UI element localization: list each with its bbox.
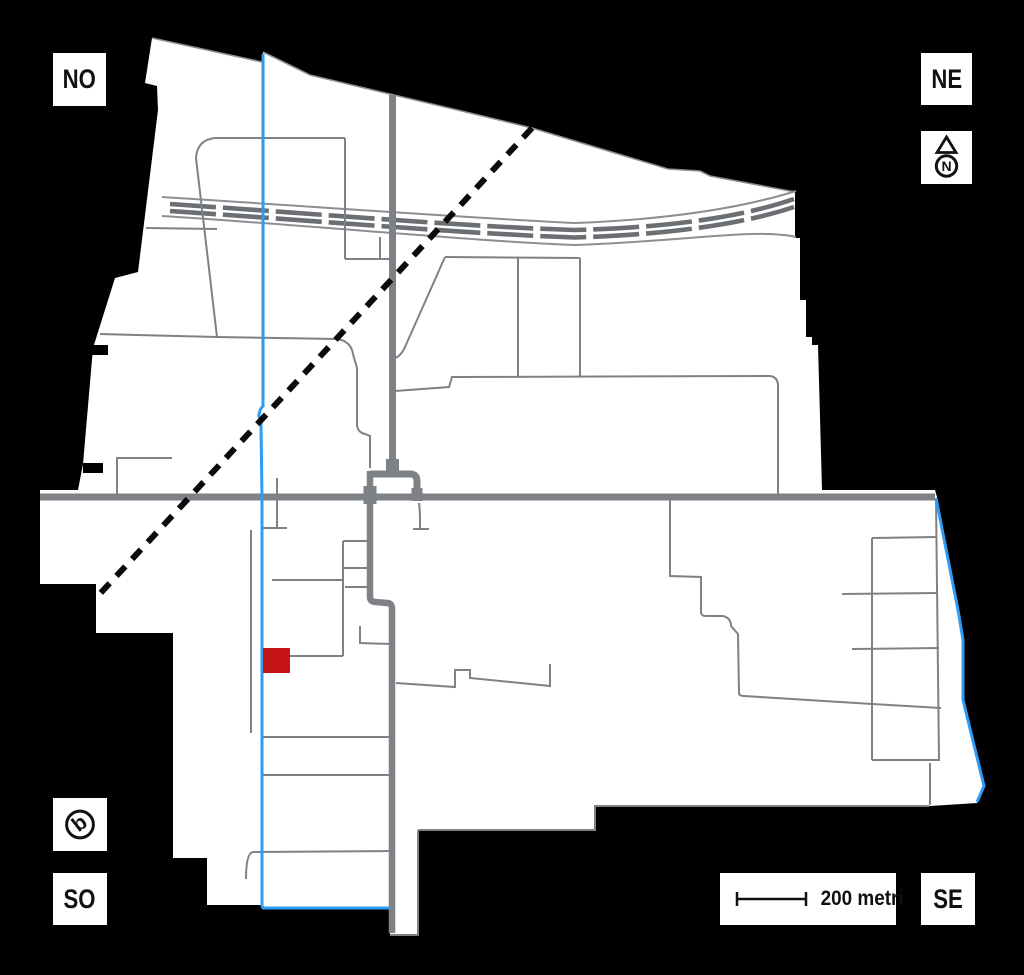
boundary-tab bbox=[83, 463, 103, 473]
district-area bbox=[40, 38, 984, 936]
district-map bbox=[0, 0, 1024, 975]
quadrant-label-ne-box: NE bbox=[921, 53, 972, 105]
highlight-marker-red-square bbox=[263, 648, 290, 673]
north-arrow-icon: N bbox=[921, 131, 972, 184]
quadrant-label-se-box: SE bbox=[921, 873, 975, 925]
street bbox=[852, 648, 939, 649]
logo-box: b bbox=[53, 798, 107, 851]
quadrant-map-screenshot: NO NE N b SO SE bbox=[0, 0, 1024, 975]
street bbox=[842, 593, 938, 594]
street bbox=[146, 228, 217, 229]
quadrant-label-se: SE bbox=[933, 886, 963, 913]
street bbox=[445, 257, 580, 258]
quadrant-label-sw-box: SO bbox=[53, 873, 107, 925]
quadrant-label-nw-box: NO bbox=[53, 53, 106, 106]
boundary-tab bbox=[92, 345, 108, 355]
compass-north-letter: N bbox=[921, 157, 972, 175]
scale-bar-label: 200 metri bbox=[821, 887, 904, 911]
quadrant-label-ne: NE bbox=[931, 66, 962, 93]
compass-box: N bbox=[921, 131, 972, 184]
quadrant-label-nw: NO bbox=[63, 66, 96, 93]
street bbox=[872, 537, 936, 538]
logo-b-icon: b bbox=[53, 798, 107, 851]
quadrant-label-sw: SO bbox=[64, 886, 96, 913]
scale-bar-box: 200 metri bbox=[720, 873, 896, 925]
